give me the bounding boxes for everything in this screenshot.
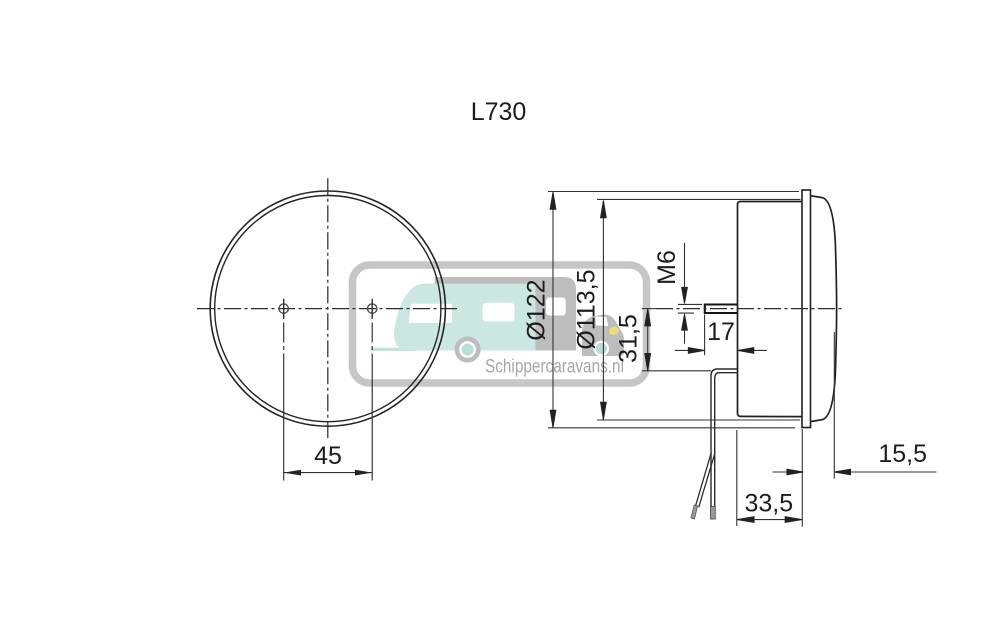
svg-text:15,5: 15,5 bbox=[878, 440, 927, 468]
svg-text:Ø113,5: Ø113,5 bbox=[573, 270, 601, 350]
svg-text:Ø122: Ø122 bbox=[523, 279, 551, 340]
svg-text:31,5: 31,5 bbox=[615, 314, 643, 363]
svg-text:17: 17 bbox=[707, 318, 735, 346]
svg-text:M6: M6 bbox=[653, 250, 681, 285]
svg-text:45: 45 bbox=[314, 442, 342, 470]
svg-text:L730: L730 bbox=[471, 98, 527, 126]
svg-text:33,5: 33,5 bbox=[744, 490, 793, 518]
